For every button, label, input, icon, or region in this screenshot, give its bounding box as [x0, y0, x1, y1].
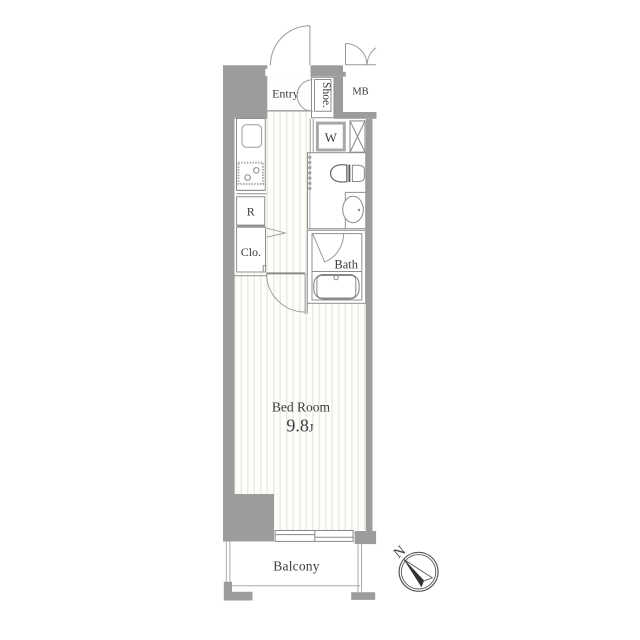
svg-text:R: R — [247, 205, 255, 219]
svg-text:Clo.: Clo. — [241, 245, 261, 259]
svg-text:MB: MB — [352, 87, 368, 98]
svg-text:Shoe.: Shoe. — [320, 82, 332, 108]
svg-text:Balcony: Balcony — [273, 559, 319, 574]
svg-text:W: W — [325, 130, 338, 145]
svg-text:Bed Room: Bed Room — [272, 400, 331, 415]
svg-text:Entry: Entry — [272, 87, 299, 101]
svg-text:Bath: Bath — [334, 258, 358, 272]
